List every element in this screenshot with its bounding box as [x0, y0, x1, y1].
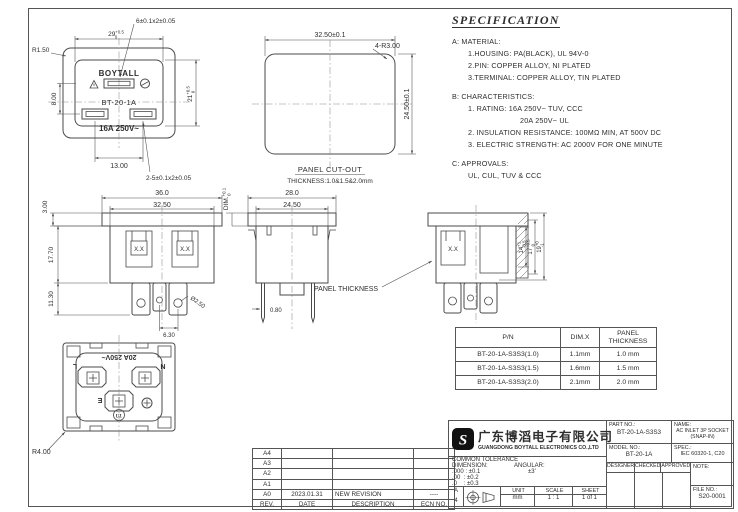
dim-cutout-width: 32.50±0.1	[314, 32, 345, 39]
spec-line: 20A 250V~ UL	[520, 115, 734, 127]
side-elevation: 28.0 24.50 DIM.+0.10 0.80	[222, 187, 337, 329]
spec-line: 1. RATING: 16A 250V~ TUV, CCC	[468, 103, 734, 115]
neutral-marking: N	[160, 362, 165, 369]
unit-cell: UNIT mm	[501, 487, 535, 507]
screw-icon	[142, 398, 152, 408]
svg-text:S: S	[459, 432, 467, 448]
scale-cell: SCALE 1 : 1	[535, 487, 573, 507]
dim-28: 28.0	[285, 190, 299, 197]
dim-17-70: 17.70	[48, 246, 55, 263]
company-logo: S	[451, 427, 475, 451]
dim-36: 36.0	[155, 190, 169, 197]
angular-tolerance: ±3'	[514, 470, 536, 476]
spec-line: 2. INSULATION RESISTANCE: 100MΩ MIN, AT …	[468, 127, 734, 139]
dim-19: 19+0-1	[535, 241, 545, 253]
section-view: X.X 14+1-0.5 17+0.50 19+0-1	[428, 205, 547, 323]
dim-terminal-slots: 2-5±0.1x2±0.05	[146, 175, 191, 182]
part-number-table: P/N DIM.X PANELTHICKNESS BT-20-1A-S3S3(1…	[455, 327, 657, 390]
rating-text: 16A 250V~	[99, 124, 139, 133]
file-no-cell: FILE NO.: S20-0001	[691, 486, 733, 508]
sheet-info-strip: A4 UNIT mm SCALE 1 : 1	[449, 487, 606, 507]
third-angle-projection-icon	[465, 489, 499, 506]
clip-label: X.X	[134, 247, 144, 253]
designer-header: DESIGNER	[607, 463, 635, 472]
col-panel-thickness: PANELTHICKNESS	[600, 328, 657, 348]
spec-line: 3. ELECTRIC STRENGTH: AC 2000V FOR ONE M…	[468, 139, 734, 151]
screw-icon	[141, 79, 150, 88]
revision-row: A1	[253, 479, 455, 489]
panel-cutout-label: PANEL CUT-OUT	[298, 165, 362, 174]
dim-cutout-height: 24.50±0.1	[404, 88, 411, 119]
revision-table: A4 A3 A2 A1 A02023.01.31 NEW REVISION---…	[252, 448, 455, 510]
rear-view: 20A 250V~ L N E UL R4.00	[30, 333, 240, 505]
dim-width: 29+0.50	[108, 30, 124, 40]
revision-row: A3	[253, 459, 455, 469]
dim-corner-radius: R1.50	[32, 47, 50, 54]
company-cell: S 广东博滔电子有限公司 GUANGDONG BOYTALL ELECTRONI…	[449, 421, 606, 457]
note-cell: NOTE:	[691, 463, 733, 486]
dim-11-30: 11.30	[48, 291, 55, 307]
spec-line: UL, CUL, TUV & CCC	[468, 170, 734, 182]
spec-line: C: APPROVALS:	[452, 158, 734, 170]
panel-thickness-label: PANEL THICKNESS	[314, 286, 378, 293]
elevation-views: 36.0 32.50 3.00 X.X X.X	[30, 183, 550, 339]
dim-cutout-radius: 4-R3.00	[375, 43, 400, 50]
table-row: BT-20-1A-S3S3(1.5)1.6mm1.5 mm	[456, 362, 657, 376]
front-elevation: 36.0 32.50 3.00 X.X X.X	[42, 190, 222, 339]
line-marking: L	[72, 362, 77, 369]
company-name-en: GUANGDONG BOYTALL ELECTRONICS CO.,LTD	[478, 445, 613, 451]
panel-cutout-view: 32.50±0.1 4-R3.00 24.50±0.1 PANEL CUT-OU…	[240, 10, 445, 188]
title-block: S 广东博滔电子有限公司 GUANGDONG BOYTALL ELECTRONI…	[448, 420, 734, 509]
col-dimx: DIM.X	[561, 328, 600, 348]
dim-3: 3.00	[42, 200, 49, 213]
table-header-row: P/N DIM.X PANELTHICKNESS	[456, 328, 657, 348]
part-no-cell: PART NO.: BT-20-1A-S3S3	[607, 421, 672, 443]
revision-header-row: REV.DATE DESCRIPTIONECN NO.	[253, 499, 455, 509]
spec-line: A: MATERIAL:	[452, 36, 734, 48]
spec-line: 3.TERMINAL: COPPER ALLOY, TIN PLATED	[468, 72, 734, 84]
model-no-cell: MODEL NO.: BT-20-1A	[607, 444, 672, 462]
spec-line: B: CHARACTERISTICS:	[452, 91, 734, 103]
revision-row: A02023.01.31 NEW REVISION----	[253, 489, 455, 499]
drawing-sheet: 6±0.1x2±0.05 29+0.50 R1.50 BOYTALL BT-20…	[0, 0, 738, 512]
earth-marking: E	[97, 396, 102, 403]
sheet-cell: SHEET 1 of 1	[573, 487, 606, 507]
company-name-cn: 广东博滔电子有限公司	[478, 426, 613, 445]
approved-header: APPROVED	[661, 463, 690, 472]
clip-label: X.X	[448, 247, 458, 253]
revision-row: A4	[253, 449, 455, 459]
checked-header: CHECKED	[635, 463, 661, 472]
dim-8: 8.00	[51, 92, 58, 105]
front-face-view: 6±0.1x2±0.05 29+0.50 R1.50 BOYTALL BT-20…	[30, 10, 265, 195]
paper-size: A4	[449, 487, 464, 507]
dim-hole: Ø2.50	[189, 296, 206, 311]
tolerance-cell: COMMON TOLERANCE DIMENSION:ANGULAR: .000…	[449, 457, 606, 487]
specification-title: SPECIFICATION	[452, 14, 560, 28]
brand-text: BOYTALL	[99, 69, 140, 78]
dim-fuse-slot: 6±0.1x2±0.05	[136, 18, 176, 25]
table-row: BT-20-1A-S3S3(1.0)1.1mm1.0 mm	[456, 348, 657, 362]
model-text: BT-20-1A	[102, 98, 137, 107]
dim-0-80: 0.80	[270, 308, 282, 314]
table-row: BT-20-1A-S3S3(2.0)2.1mm2.0 mm	[456, 376, 657, 390]
col-pn: P/N	[456, 328, 561, 348]
dim-x-label: DIM.+0.10	[222, 187, 232, 210]
triangle-marker-icon	[90, 81, 98, 89]
dim-height: 21+0.50	[186, 86, 196, 102]
spec-cell: SPEC.: IEC 60320-1, C20	[672, 444, 733, 462]
revision-row: A2	[253, 469, 455, 479]
spec-line: 1.HOUSING: PA(BLACK), UL 94V-0	[468, 48, 734, 60]
spec-line: 2.PIN: COPPER ALLOY, NI PLATED	[468, 60, 734, 72]
name-cell: NAME: AC INLET 3P SOCKET (SNAP-IN)	[672, 421, 733, 443]
signature-row	[607, 473, 690, 508]
dim-rear-radius: R4.00	[32, 449, 51, 456]
clip-label: X.X	[180, 247, 190, 253]
dim-13: 13.00	[110, 163, 128, 170]
specification-block: SPECIFICATION A: MATERIAL: 1.HOUSING: PA…	[452, 14, 734, 182]
